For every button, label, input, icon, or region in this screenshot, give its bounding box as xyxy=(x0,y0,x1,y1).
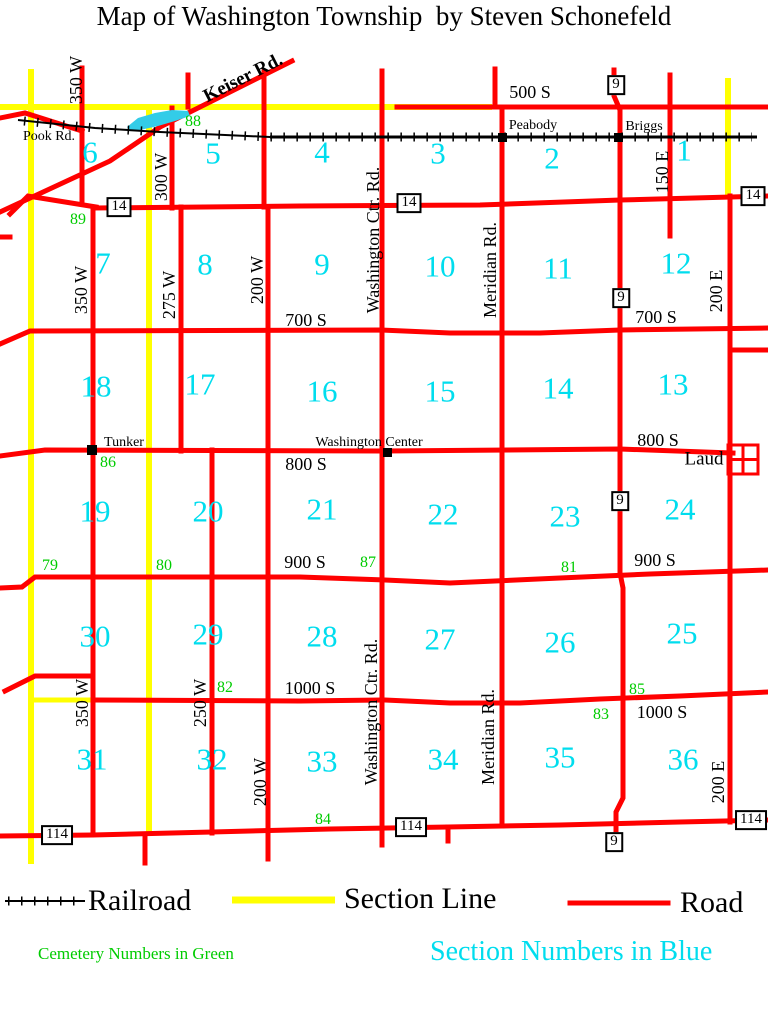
section-number: 23 xyxy=(550,501,581,532)
cemetery-number: 81 xyxy=(561,560,577,576)
map-title: Map of Washington Township by Steven Sch… xyxy=(0,1,768,32)
road-label-350w-north: 350 W xyxy=(67,56,85,104)
legend-road-label: Road xyxy=(680,886,743,920)
section-number: 11 xyxy=(543,253,573,284)
label-overlay: Map of Washington Township by Steven Sch… xyxy=(0,0,768,1010)
road-label-350w-mid: 350 W xyxy=(72,266,90,314)
section-number: 31 xyxy=(77,744,108,775)
highway-marker: 9 xyxy=(611,491,629,511)
town-label-laud: Laud xyxy=(684,450,723,469)
section-number: 26 xyxy=(545,627,576,658)
road-label-200e-north: 200 E xyxy=(707,270,725,313)
highway-marker: 9 xyxy=(612,288,630,308)
road-label-1000s-east: 1000 S xyxy=(637,703,688,721)
section-number: 32 xyxy=(197,744,228,775)
road-label-300w: 300 W xyxy=(152,153,170,201)
legend-railroad-label: Railroad xyxy=(88,884,191,918)
section-number: 30 xyxy=(80,621,111,652)
section-number: 18 xyxy=(81,371,112,402)
town-label-washington-center: Washington Center xyxy=(315,436,422,450)
section-number: 3 xyxy=(430,138,446,169)
section-number: 15 xyxy=(425,376,456,407)
road-label-250w: 250 W xyxy=(191,679,209,727)
section-number: 21 xyxy=(307,494,338,525)
highway-marker: 14 xyxy=(397,193,422,213)
highway-marker: 14 xyxy=(107,197,132,217)
road-label-900s-west: 900 S xyxy=(284,553,326,571)
township-map: Map of Washington Township by Steven Sch… xyxy=(0,0,768,1010)
highway-marker: 14 xyxy=(741,186,766,206)
section-number: 29 xyxy=(193,619,224,650)
section-number: 9 xyxy=(314,249,330,280)
section-number: 35 xyxy=(545,742,576,773)
town-label-peabody: Peabody xyxy=(509,119,557,133)
cemetery-number: 87 xyxy=(360,555,376,571)
road-label-800s-east: 800 S xyxy=(637,431,679,449)
town-label-briggs: Briggs xyxy=(625,120,662,134)
cemetery-number: 84 xyxy=(315,812,331,828)
cemetery-number: 80 xyxy=(156,558,172,574)
road-label-350w-south: 350 W xyxy=(73,679,91,727)
section-number: 34 xyxy=(428,744,459,775)
road-label-washington-ctr-north: Washington Ctr. Rd. xyxy=(364,167,382,314)
cemetery-note: Cemetery Numbers in Green xyxy=(38,944,234,964)
road-label-700s-east: 700 S xyxy=(635,308,677,326)
highway-marker: 9 xyxy=(605,832,623,852)
road-label-keiser: Keiser Rd. xyxy=(200,50,285,106)
section-number: 16 xyxy=(307,376,338,407)
section-number: 4 xyxy=(314,137,330,168)
section-number: 19 xyxy=(80,496,111,527)
section-number: 14 xyxy=(543,373,574,404)
section-number: 33 xyxy=(307,746,338,777)
town-label-tunker: Tunker xyxy=(104,436,144,450)
legend-section-line-label: Section Line xyxy=(344,882,496,916)
road-label-900s-east: 900 S xyxy=(634,551,676,569)
road-label-pook: Pook Rd. xyxy=(23,130,75,144)
section-number: 27 xyxy=(425,624,456,655)
section-note: Section Numbers in Blue xyxy=(430,936,712,968)
cemetery-number: 82 xyxy=(217,680,233,696)
section-number: 20 xyxy=(193,496,224,527)
road-label-meridian-north: Meridian Rd. xyxy=(481,222,499,318)
road-label-500s: 500 S xyxy=(509,83,551,101)
road-label-meridian-south: Meridian Rd. xyxy=(479,689,497,785)
cemetery-number: 79 xyxy=(42,558,58,574)
section-number: 17 xyxy=(185,369,216,400)
highway-marker: 114 xyxy=(41,825,73,845)
section-number: 28 xyxy=(307,621,338,652)
section-number: 5 xyxy=(205,138,221,169)
section-number: 12 xyxy=(661,248,692,279)
section-number: 24 xyxy=(665,494,696,525)
road-label-200w-north: 200 W xyxy=(248,256,266,304)
road-label-200e-south: 200 E xyxy=(709,761,727,804)
road-label-150e: 150 E xyxy=(653,151,671,194)
cemetery-number: 85 xyxy=(629,682,645,698)
section-number: 1 xyxy=(676,135,692,166)
road-label-800s-west: 800 S xyxy=(285,455,327,473)
section-number: 22 xyxy=(428,499,459,530)
section-number: 7 xyxy=(95,248,111,279)
section-number: 10 xyxy=(425,251,456,282)
section-number: 25 xyxy=(667,618,698,649)
road-label-275w: 275 W xyxy=(160,271,178,319)
section-number: 13 xyxy=(658,369,689,400)
highway-marker: 114 xyxy=(735,810,767,830)
highway-marker: 114 xyxy=(395,817,427,837)
road-label-700s-west: 700 S xyxy=(285,311,327,329)
cemetery-number: 88 xyxy=(185,114,201,130)
cemetery-number: 89 xyxy=(70,212,86,228)
section-number: 36 xyxy=(668,744,699,775)
road-label-washington-ctr-south: Washington Ctr. Rd. xyxy=(362,639,380,786)
cemetery-number: 83 xyxy=(593,707,609,723)
road-label-200w-south: 200 W xyxy=(251,758,269,806)
highway-marker: 9 xyxy=(607,75,625,95)
section-number: 6 xyxy=(82,137,98,168)
cemetery-number: 86 xyxy=(100,455,116,471)
road-label-1000s-west: 1000 S xyxy=(285,679,336,697)
section-number: 2 xyxy=(544,143,560,174)
section-number: 8 xyxy=(197,249,213,280)
